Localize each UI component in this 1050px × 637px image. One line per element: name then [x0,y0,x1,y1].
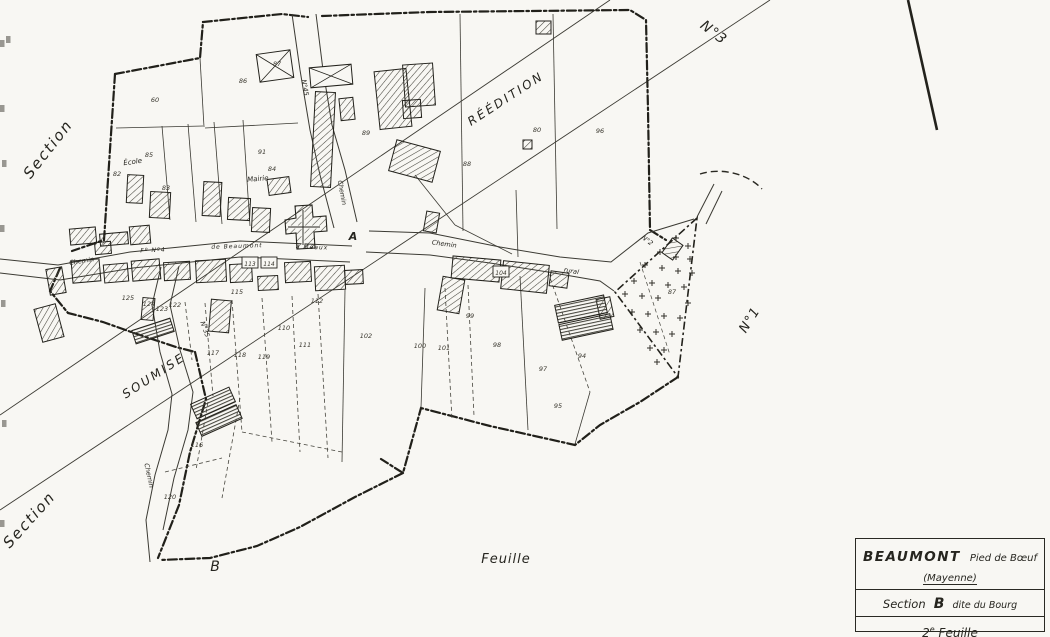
cadastral-map-sheet: 1131141046086878096858482838889911251241… [0,0,1050,637]
building-hatched [345,270,364,285]
map-label-no45: N°45 [300,79,311,97]
church-layer [285,205,327,249]
sheet-label: 2e Feuille [922,626,978,637]
map-label-no2: N°2 [640,234,655,248]
building-hatched [258,275,279,290]
parcel-line-dashed [262,298,272,442]
parcel-number: 123 [156,305,168,313]
building-hatched [662,238,683,260]
parcel-number: 94 [578,352,586,360]
map-label-no3: N°3 [697,17,730,48]
parcel-line [200,58,204,127]
parcel-number: 110 [278,324,290,332]
grave-cross-icon [655,295,661,301]
parcel-line-dashed [468,285,474,416]
building-hatched [284,261,311,282]
parcel-number: 80 [533,126,541,134]
parcel-number: 91 [258,148,266,156]
title-row-commune: BEAUMONT Pied de Bœuf [856,546,1044,565]
building-hatched [131,259,161,281]
scan-edge-mark [6,36,11,43]
scan-edge-mark [0,520,5,527]
building-hatched [314,265,345,291]
buildings-layer [34,21,683,436]
title-row-sheet: 2e Feuille [856,622,1044,637]
building-hatched [164,261,191,280]
grave-cross-icon [677,315,683,321]
parcel-number: 60 [151,96,159,104]
section-boundary [322,10,650,230]
scan-edge-mark [1,300,6,307]
parcel-number: 102 [360,332,372,340]
building-hatched [202,182,222,217]
parcel-line-dashed [292,296,300,452]
grave-cross-icon [661,313,667,319]
building-hatched [126,175,143,204]
building-hatched [536,21,551,34]
survey-stroke-top-right [908,0,937,130]
parcel-number: 118 [234,351,246,359]
map-label-section-top-left: Section [20,116,77,182]
map-label-chemin-north: Chemin [336,180,348,206]
parcel-number: 96 [596,127,604,135]
parcel-number: 120 [164,493,176,501]
map-label-feuille: Feuille [481,552,531,567]
parcel-number: 86 [239,77,247,85]
building-hatched [267,177,291,196]
boundary-curve-ne [700,171,762,189]
parcel-line [205,123,298,128]
title-row-department: (Mayenne) [856,566,1044,585]
map-label-junction-a: A [348,230,358,243]
parcel-number: 88 [463,160,471,168]
parcel-number: 100 [414,342,426,350]
map-label-chemin-east: Chemin [431,238,457,249]
grave-cross-icon [631,278,637,284]
parcel-number: 119 [258,353,270,361]
section-boundary [160,473,403,560]
map-label-ecole: École [123,156,143,168]
map-label-de-beaumont: de Beaumont [211,242,263,251]
scan-edge-mark [0,40,5,47]
parcel-line [516,190,518,257]
title-divider-1 [856,589,1044,590]
grave-cross-icon [685,243,691,249]
grave-cross-icon [675,268,681,274]
building-hatched [339,97,355,120]
building-hatched [251,208,270,233]
department-name: (Mayenne) [923,573,976,585]
building-hatched [311,92,336,188]
cemetery-layer [615,218,697,377]
parcel-number-boxed: 113 [244,261,256,268]
building-hatched [129,225,150,245]
parcel-number: 84 [268,165,276,173]
parcel-line [342,290,345,462]
parcel-line [188,124,196,222]
section-boundary [381,377,678,473]
roads-layer [0,14,722,562]
scan-edge-mark [2,160,7,167]
grave-cross-icon [654,359,660,365]
parcel-number: 95 [554,402,562,410]
map-label-letter-b: B [210,559,220,575]
grave-cross-icon [653,329,659,335]
building-hatched [209,299,232,333]
building-hatched [437,276,465,313]
grave-cross-icon [645,311,651,317]
parcel-number: 112 [311,297,323,305]
commune-name: BEAUMONT [863,549,961,565]
parcel-number: 89 [362,129,370,137]
map-label-reedition: RÉÉDITION [465,68,547,129]
building-hatched [523,140,532,149]
section-word: Section [883,597,926,611]
parcel-number: 115 [231,288,243,296]
grave-cross-icon [622,291,628,297]
map-label-section-bottom-left: Section [0,488,59,552]
building-hatched [374,68,412,129]
title-block: BEAUMONT Pied de Bœuf (Mayenne) Section … [855,538,1045,632]
parcel-number: 101 [438,344,450,352]
parcel-number: 87 [668,288,677,296]
parcel-number: 99 [466,312,474,320]
grave-cross-icon [661,347,667,353]
commune-subtitle: Pied de Bœuf [970,553,1037,564]
grave-cross-icon [629,309,635,315]
parcel-number: 124 [143,300,155,308]
parcel-line [460,14,463,231]
parcel-number: 85 [145,151,153,159]
scan-edge-mark [0,225,5,232]
building-hatched [149,191,170,218]
parcel-number: 117 [207,349,220,357]
building-hatched [34,304,64,343]
parcel-number: 97 [539,365,548,373]
building-hatched [69,227,96,245]
boundary-layer [50,10,678,560]
scan-edge-mark [0,105,5,112]
building-hatched [389,140,441,183]
parcel-line [553,14,557,229]
map-label-fo-no4: Fº Nº4 [140,247,166,255]
grave-cross-icon [681,284,687,290]
section-letter: B [934,596,945,612]
map-label-no1: N°1 [736,305,763,336]
parcel-line-dashed [165,458,222,472]
parcel-number: 98 [493,341,501,349]
grave-cross-icon [639,293,645,299]
grave-cross-icon [649,280,655,286]
building-hatched [95,241,112,254]
section-boundary [72,74,115,251]
map-label-chemin-south: Chemin [142,463,155,489]
parcel-number: 111 [299,341,311,349]
parcel-number: 122 [169,301,181,309]
map-label-a-meaux: à Méaux [296,243,329,251]
parcel-number-boxed: 104 [495,270,507,277]
parcel-number-boxed: 114 [263,261,275,268]
parcel-line-dashed [318,294,328,458]
parcel-number: 82 [113,170,121,178]
grave-cross-icon [685,300,691,306]
building-hatched [195,259,226,283]
section-rest: dite du Bourg [952,600,1017,611]
parcel-number: 125 [122,294,134,302]
building-hatched [423,211,439,233]
building-hatched [227,197,250,220]
building-hatched [103,263,128,283]
parcel-number: 116 [191,441,203,449]
grave-cross-icon [669,331,675,337]
scan-edge-mark [2,420,7,427]
parcel-number: 87 [273,60,282,68]
parcel-number: 83 [162,184,170,192]
section-boundary [158,352,206,558]
grave-cross-icon [647,345,653,351]
map-label-soumise: SOUMISE [120,350,188,401]
parcel-line [520,276,528,430]
title-row-section: Section B dite du Bourg [856,593,1044,612]
parcel-line [116,126,203,128]
map-label-mairie: Mairie [247,174,269,184]
grave-cross-icon [659,265,665,271]
title-divider-2 [856,616,1044,617]
cemetery-inner-line [640,262,670,355]
